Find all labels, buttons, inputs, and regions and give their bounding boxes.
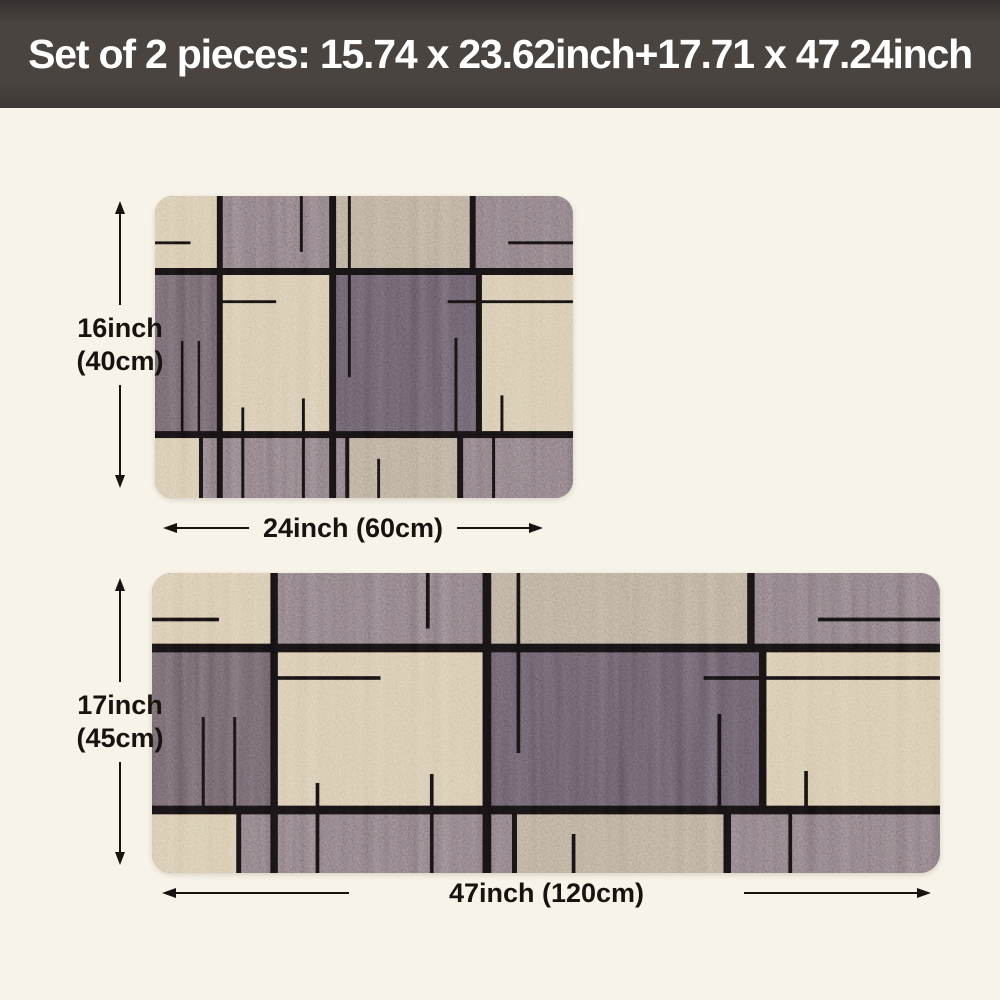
rug-pattern: [155, 196, 573, 498]
large-rug-height-dimension: 17inch (45cm): [50, 578, 190, 865]
dimension-line: [119, 385, 122, 476]
banner-title: Set of 2 pieces: 15.74 x 23.62inch+17.71…: [28, 31, 972, 78]
arrow-left-icon: [162, 888, 176, 898]
dimension-line: [176, 892, 349, 895]
small-rug-width-label: 24inch (60cm): [249, 512, 457, 545]
height-value-cm: (45cm): [76, 722, 163, 755]
dimension-line: [119, 762, 122, 853]
large-rug-width-dimension: 47inch (120cm): [162, 874, 931, 912]
arrow-right-icon: [529, 523, 543, 533]
small-rug-width-dimension: 24inch (60cm): [163, 509, 543, 547]
small-rug-height-dimension: 16inch (40cm): [50, 201, 190, 488]
small-rug-photo: [155, 196, 573, 498]
height-value-inch: 17inch: [76, 689, 163, 722]
dimension-line: [177, 527, 249, 530]
small-rug-height-label: 16inch (40cm): [76, 305, 163, 385]
rug-pattern: [152, 573, 940, 873]
dimension-line: [744, 892, 917, 895]
arrow-down-icon: [115, 475, 125, 488]
dimension-line: [119, 591, 122, 682]
arrow-down-icon: [115, 852, 125, 865]
arrow-up-icon: [115, 201, 125, 214]
large-rug-photo: [152, 573, 940, 873]
height-value-inch: 16inch: [76, 312, 163, 345]
dimension-line: [457, 527, 529, 530]
height-value-cm: (40cm): [76, 345, 163, 378]
large-rug-width-label: 47inch (120cm): [349, 877, 744, 910]
dimension-line: [119, 214, 122, 305]
banner: Set of 2 pieces: 15.74 x 23.62inch+17.71…: [0, 0, 1000, 108]
arrow-up-icon: [115, 578, 125, 591]
arrow-right-icon: [917, 888, 931, 898]
large-rug-height-label: 17inch (45cm): [76, 682, 163, 762]
arrow-left-icon: [163, 523, 177, 533]
